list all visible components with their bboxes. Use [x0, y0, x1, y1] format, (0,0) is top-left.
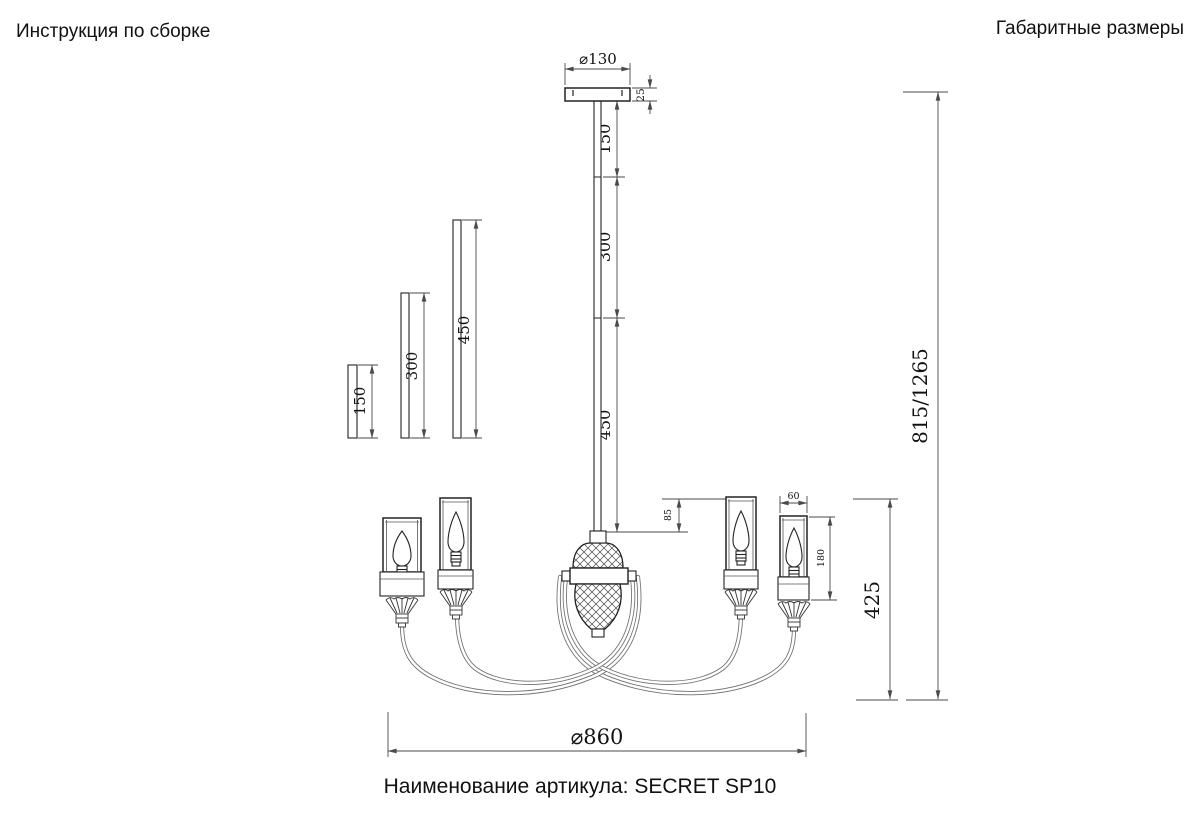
technical-drawing-page: Инструкция по сборке Габаритные размеры …	[0, 0, 1200, 827]
chandelier-dimension-drawing: Инструкция по сборке Габаритные размеры …	[0, 0, 1200, 827]
dimension-canopy-diameter: ⌀130	[565, 50, 630, 85]
page-title-right: Габаритные размеры	[996, 18, 1184, 39]
dimension-shade-width: 60	[780, 491, 807, 513]
dim-shade-width-label: 60	[787, 491, 799, 502]
dim-shade-height-label: 180	[816, 549, 827, 567]
dim-overall-diameter-label: ⌀860	[571, 725, 624, 749]
dim-hub-drop-label: 85	[663, 509, 674, 521]
finial-cap	[592, 629, 604, 637]
spare-rod-medium: 300	[401, 293, 430, 438]
article-name-label: Наименование артикула: SECRET SP10	[384, 775, 777, 798]
ceiling-canopy	[565, 88, 630, 101]
crystal-bobeche	[778, 602, 810, 632]
crystal-bobeche	[725, 590, 757, 620]
dim-body-height-label: 425	[860, 581, 884, 619]
dimension-overall-diameter: ⌀860	[388, 712, 806, 757]
hub-tab-right	[628, 571, 636, 581]
dim-spare-rod-long-label: 450	[455, 316, 473, 345]
spare-rod-long: 450	[453, 220, 482, 438]
shade-inner-right	[724, 497, 758, 619]
spare-rod-short: 150	[348, 365, 378, 438]
shade-base	[438, 570, 473, 589]
dim-overall-height-label: 815/1265	[908, 348, 932, 444]
hub-band	[570, 568, 628, 584]
crystal-bobeche	[386, 598, 418, 628]
dim-canopy-height-label: 25	[635, 88, 647, 101]
crystal-dome-upper	[573, 543, 623, 568]
dimension-hub-drop: 85	[662, 499, 730, 532]
shade-outer-left	[380, 518, 424, 627]
dimension-canopy-height: 25	[632, 75, 657, 114]
crystal-dome-lower	[575, 584, 621, 629]
shade-base	[724, 570, 758, 589]
shade-inner-left	[438, 498, 473, 619]
shade-base	[380, 572, 424, 596]
center-ornament	[562, 543, 636, 637]
dim-canopy-diameter-label: ⌀130	[579, 50, 617, 68]
dimension-body-height: 425	[853, 499, 898, 700]
dimension-shade-height: 180	[809, 517, 837, 600]
crystal-bobeche	[440, 590, 472, 620]
dimension-overall-height: 815/1265	[903, 92, 948, 700]
suspension-rod	[590, 101, 606, 543]
dim-spare-rod-medium-label: 300	[403, 352, 421, 381]
shade-outer-right	[778, 516, 810, 631]
rod-end-cap	[590, 531, 606, 543]
dimension-rod-segments: 150 300 450	[595, 101, 688, 532]
dim-spare-rod-short-label: 150	[351, 387, 369, 416]
hub-tab-left	[562, 571, 570, 581]
shade-base	[778, 577, 809, 600]
page-title-left: Инструкция по сборке	[16, 21, 210, 42]
